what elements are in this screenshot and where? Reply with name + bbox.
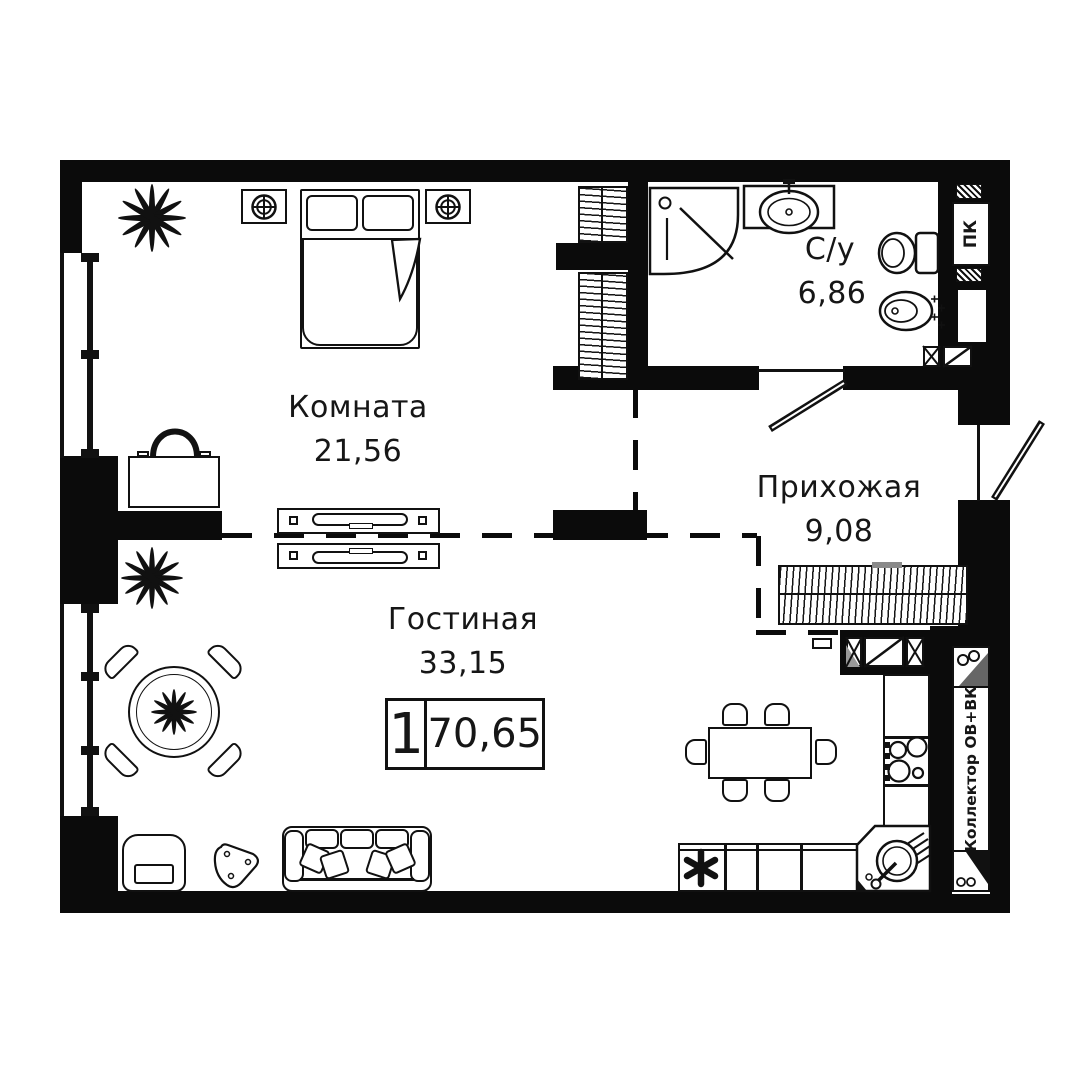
- lamp-icon: [252, 195, 276, 219]
- blanket-fold: [392, 239, 420, 299]
- vent-x-marks: [846, 346, 972, 667]
- table-plant-icon: [151, 689, 197, 735]
- entry-door-leaf: [994, 422, 1042, 499]
- shower-cabin: [650, 188, 738, 274]
- meter-icon-top: [958, 651, 988, 686]
- bidet: [880, 292, 945, 330]
- lamp-icon: [436, 195, 460, 219]
- toilet: [879, 233, 938, 273]
- bathroom-sink: [744, 179, 834, 233]
- meter-icon-bottom: [957, 852, 988, 886]
- plan-detail-overlay: [0, 0, 1080, 1080]
- corner-sink: [857, 826, 930, 891]
- plant-icon: [118, 184, 186, 252]
- fridge-icon: [687, 852, 715, 884]
- plant-icon: [121, 547, 183, 609]
- apartment-floor-plan: ПК Коллектор ОВ+ВК Комната 21,56 Гостина…: [0, 0, 1080, 1080]
- side-table: [215, 844, 258, 887]
- stove-burners: [885, 738, 927, 782]
- bathroom-door-leaf: [770, 382, 846, 429]
- bag-handle: [153, 432, 197, 458]
